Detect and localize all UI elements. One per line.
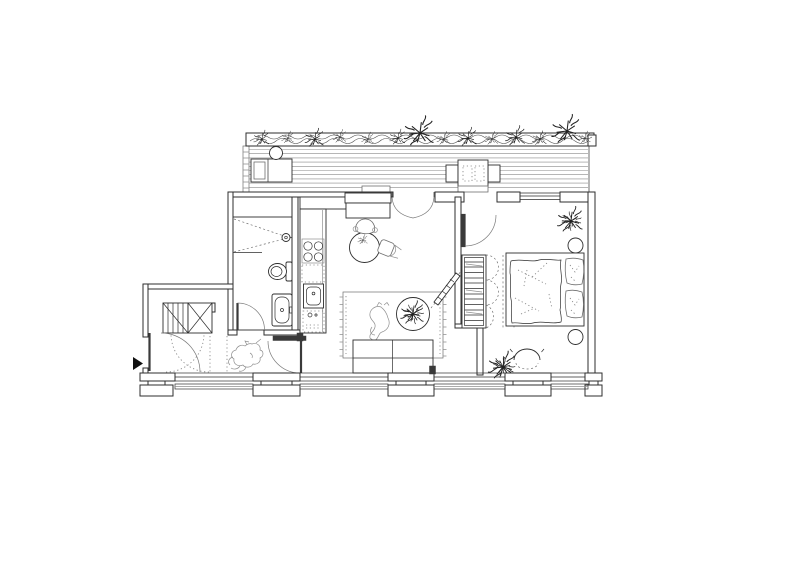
washbasin bbox=[272, 294, 292, 326]
entry-left-wall bbox=[143, 284, 148, 337]
bathroom-bottom-wall-b bbox=[264, 330, 300, 335]
sofa bbox=[353, 340, 433, 373]
pillow-bottom bbox=[565, 290, 583, 318]
floor-plan-drawing: Apartment floor plan bbox=[0, 0, 800, 566]
tall-cabinet bbox=[345, 193, 391, 218]
toilet bbox=[269, 262, 293, 281]
wardrobe-closet bbox=[163, 303, 212, 333]
terrace-side-table bbox=[270, 147, 283, 160]
wall-pier-2 bbox=[253, 373, 300, 381]
round-dining-table bbox=[350, 233, 380, 263]
bathroom-kitchen-wall bbox=[292, 197, 298, 333]
entry-top-wall bbox=[143, 284, 233, 289]
top-wall-bedroom-b bbox=[497, 192, 520, 202]
wardrobe-shelves bbox=[462, 255, 486, 328]
french-door-threshold bbox=[362, 186, 390, 192]
planter-end-post bbox=[588, 135, 596, 146]
pillow-top bbox=[565, 258, 584, 285]
kitchen-counter-run bbox=[300, 209, 326, 333]
wall-pier-5 bbox=[585, 373, 602, 381]
floor-plan-page: Apartment floor plan bbox=[0, 0, 800, 566]
bedroom-lower-wall bbox=[477, 328, 483, 375]
outdoor-chair-left bbox=[446, 165, 458, 182]
window-jamb-block-b bbox=[297, 333, 303, 341]
wall-pier-3 bbox=[388, 373, 434, 381]
kitchen-sink bbox=[304, 284, 324, 308]
living-bedroom-wall bbox=[455, 197, 461, 328]
round-side-table bbox=[568, 330, 583, 345]
kitchen-counter-top bbox=[300, 197, 346, 209]
shower-head-icon bbox=[282, 234, 290, 242]
right-wall bbox=[588, 192, 595, 381]
wall-pier-1 bbox=[140, 373, 175, 381]
bathroom-bottom-wall-a bbox=[228, 330, 237, 335]
bedroom-door-threshold bbox=[458, 186, 488, 192]
coffee-table bbox=[397, 298, 430, 331]
lounge-chair bbox=[251, 159, 292, 182]
terrace-edge-rail bbox=[243, 146, 249, 192]
bathroom-left-wall bbox=[228, 192, 233, 335]
outdoor-dining-table bbox=[458, 160, 488, 187]
paper-background bbox=[0, 0, 800, 566]
round-pouf bbox=[568, 238, 583, 253]
window-jamb-block-a bbox=[430, 366, 436, 374]
wall-pier-4 bbox=[505, 373, 551, 381]
double-bed bbox=[506, 253, 584, 326]
outdoor-chair-right bbox=[488, 165, 500, 182]
